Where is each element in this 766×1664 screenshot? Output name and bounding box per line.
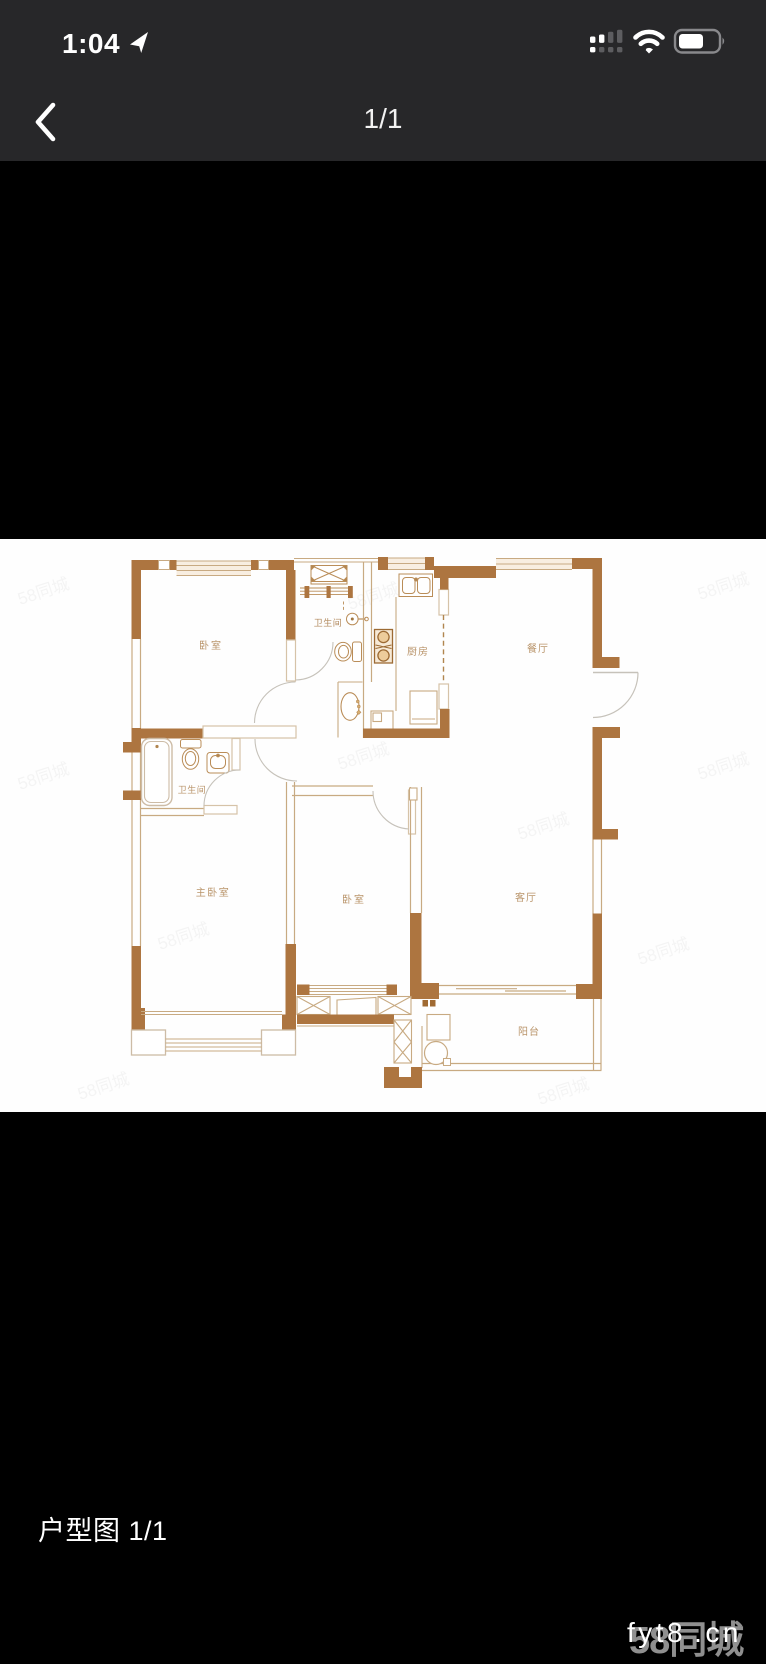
- svg-text:厨房: 厨房: [407, 645, 429, 658]
- svg-text:58同城: 58同城: [15, 574, 71, 608]
- svg-text:58同城: 58同城: [345, 579, 401, 613]
- svg-text:58同城: 58同城: [695, 569, 751, 603]
- svg-text:主卧室: 主卧室: [196, 886, 231, 899]
- svg-text:客厅: 客厅: [515, 891, 537, 904]
- svg-text:58同城: 58同城: [515, 809, 571, 843]
- svg-text:卧室: 卧室: [199, 639, 223, 652]
- svg-text:58同城: 58同城: [535, 1074, 591, 1108]
- svg-text:58同城: 58同城: [75, 1069, 131, 1103]
- svg-text:阳台: 阳台: [518, 1025, 540, 1038]
- svg-text:卫生间: 卫生间: [178, 784, 207, 795]
- svg-text:58同城: 58同城: [695, 749, 751, 783]
- svg-text:58同城: 58同城: [635, 934, 691, 968]
- svg-text:58同城: 58同城: [15, 759, 71, 793]
- svg-text:58同城: 58同城: [335, 739, 391, 773]
- svg-text:餐厅: 餐厅: [527, 642, 549, 655]
- svg-text:卧室: 卧室: [342, 893, 366, 906]
- svg-text:58同城: 58同城: [155, 919, 211, 953]
- svg-text:卫生间: 卫生间: [314, 617, 343, 628]
